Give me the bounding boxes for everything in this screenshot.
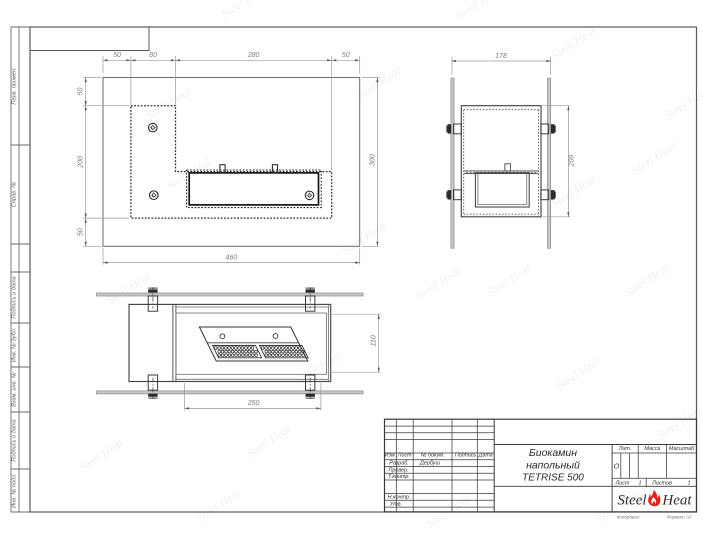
svg-text:1: 1	[639, 480, 642, 486]
svg-text:178: 178	[495, 53, 507, 60]
svg-text:Биокамин: Биокамин	[529, 447, 577, 459]
svg-text:Инв. № подл.: Инв. № подл.	[12, 473, 18, 508]
svg-text:TETRISE 500: TETRISE 500	[522, 472, 584, 483]
svg-text:Взам. инв. №: Взам. инв. №	[12, 372, 18, 407]
svg-text:Лист: Лист	[615, 480, 630, 486]
svg-text:Разраб.: Разраб.	[389, 461, 409, 467]
svg-text:Утв.: Утв.	[389, 502, 402, 508]
svg-text:50: 50	[113, 52, 121, 59]
svg-text:Подпись: Подпись	[455, 452, 477, 458]
svg-text:Инв. № дубл.: Инв. № дубл.	[12, 328, 18, 362]
svg-text:50: 50	[78, 88, 85, 96]
svg-text:50: 50	[78, 228, 85, 236]
svg-text:200: 200	[78, 156, 85, 169]
svg-text:280: 280	[247, 52, 260, 59]
svg-text:Листов: Листов	[651, 480, 672, 486]
svg-text:Т.контр.: Т.контр.	[388, 474, 410, 480]
svg-text:Steel: Steel	[617, 493, 646, 509]
svg-text:Изм.: Изм.	[385, 452, 397, 458]
svg-text:300: 300	[369, 154, 376, 166]
svg-text:Масса: Масса	[644, 446, 660, 452]
svg-text:1: 1	[688, 480, 691, 486]
svg-text:Дата: Дата	[478, 452, 493, 458]
svg-text:110: 110	[370, 335, 377, 346]
svg-text:250: 250	[247, 400, 260, 407]
svg-text:Heat: Heat	[661, 493, 692, 509]
svg-text:Провер.: Провер.	[388, 467, 408, 473]
svg-text:Справ. №: Справ. №	[12, 182, 18, 207]
svg-text:80: 80	[149, 52, 157, 59]
svg-text:№ докум.: № докум.	[421, 452, 445, 458]
svg-text:Копировал: Копировал	[617, 514, 640, 519]
svg-text:Подпись и дата: Подпись и дата	[12, 276, 18, 318]
svg-text:Масштаб: Масштаб	[669, 446, 695, 452]
svg-text:О: О	[614, 462, 620, 471]
svg-text:Лист: Лист	[397, 452, 412, 458]
svg-text:Перв. примен.: Перв. примен.	[12, 67, 18, 104]
svg-text:50: 50	[342, 52, 350, 59]
svg-text:Дербуш: Дербуш	[419, 461, 440, 467]
svg-text:Подпись и дата: Подпись и дата	[12, 419, 18, 461]
svg-text:200: 200	[569, 155, 576, 168]
svg-text:Формат А3: Формат А3	[666, 514, 692, 519]
svg-text:460: 460	[226, 254, 238, 261]
svg-text:Н.контр.: Н.контр.	[388, 495, 411, 501]
svg-text:напольный: напольный	[526, 459, 580, 471]
svg-text:Лит.: Лит.	[618, 446, 632, 452]
